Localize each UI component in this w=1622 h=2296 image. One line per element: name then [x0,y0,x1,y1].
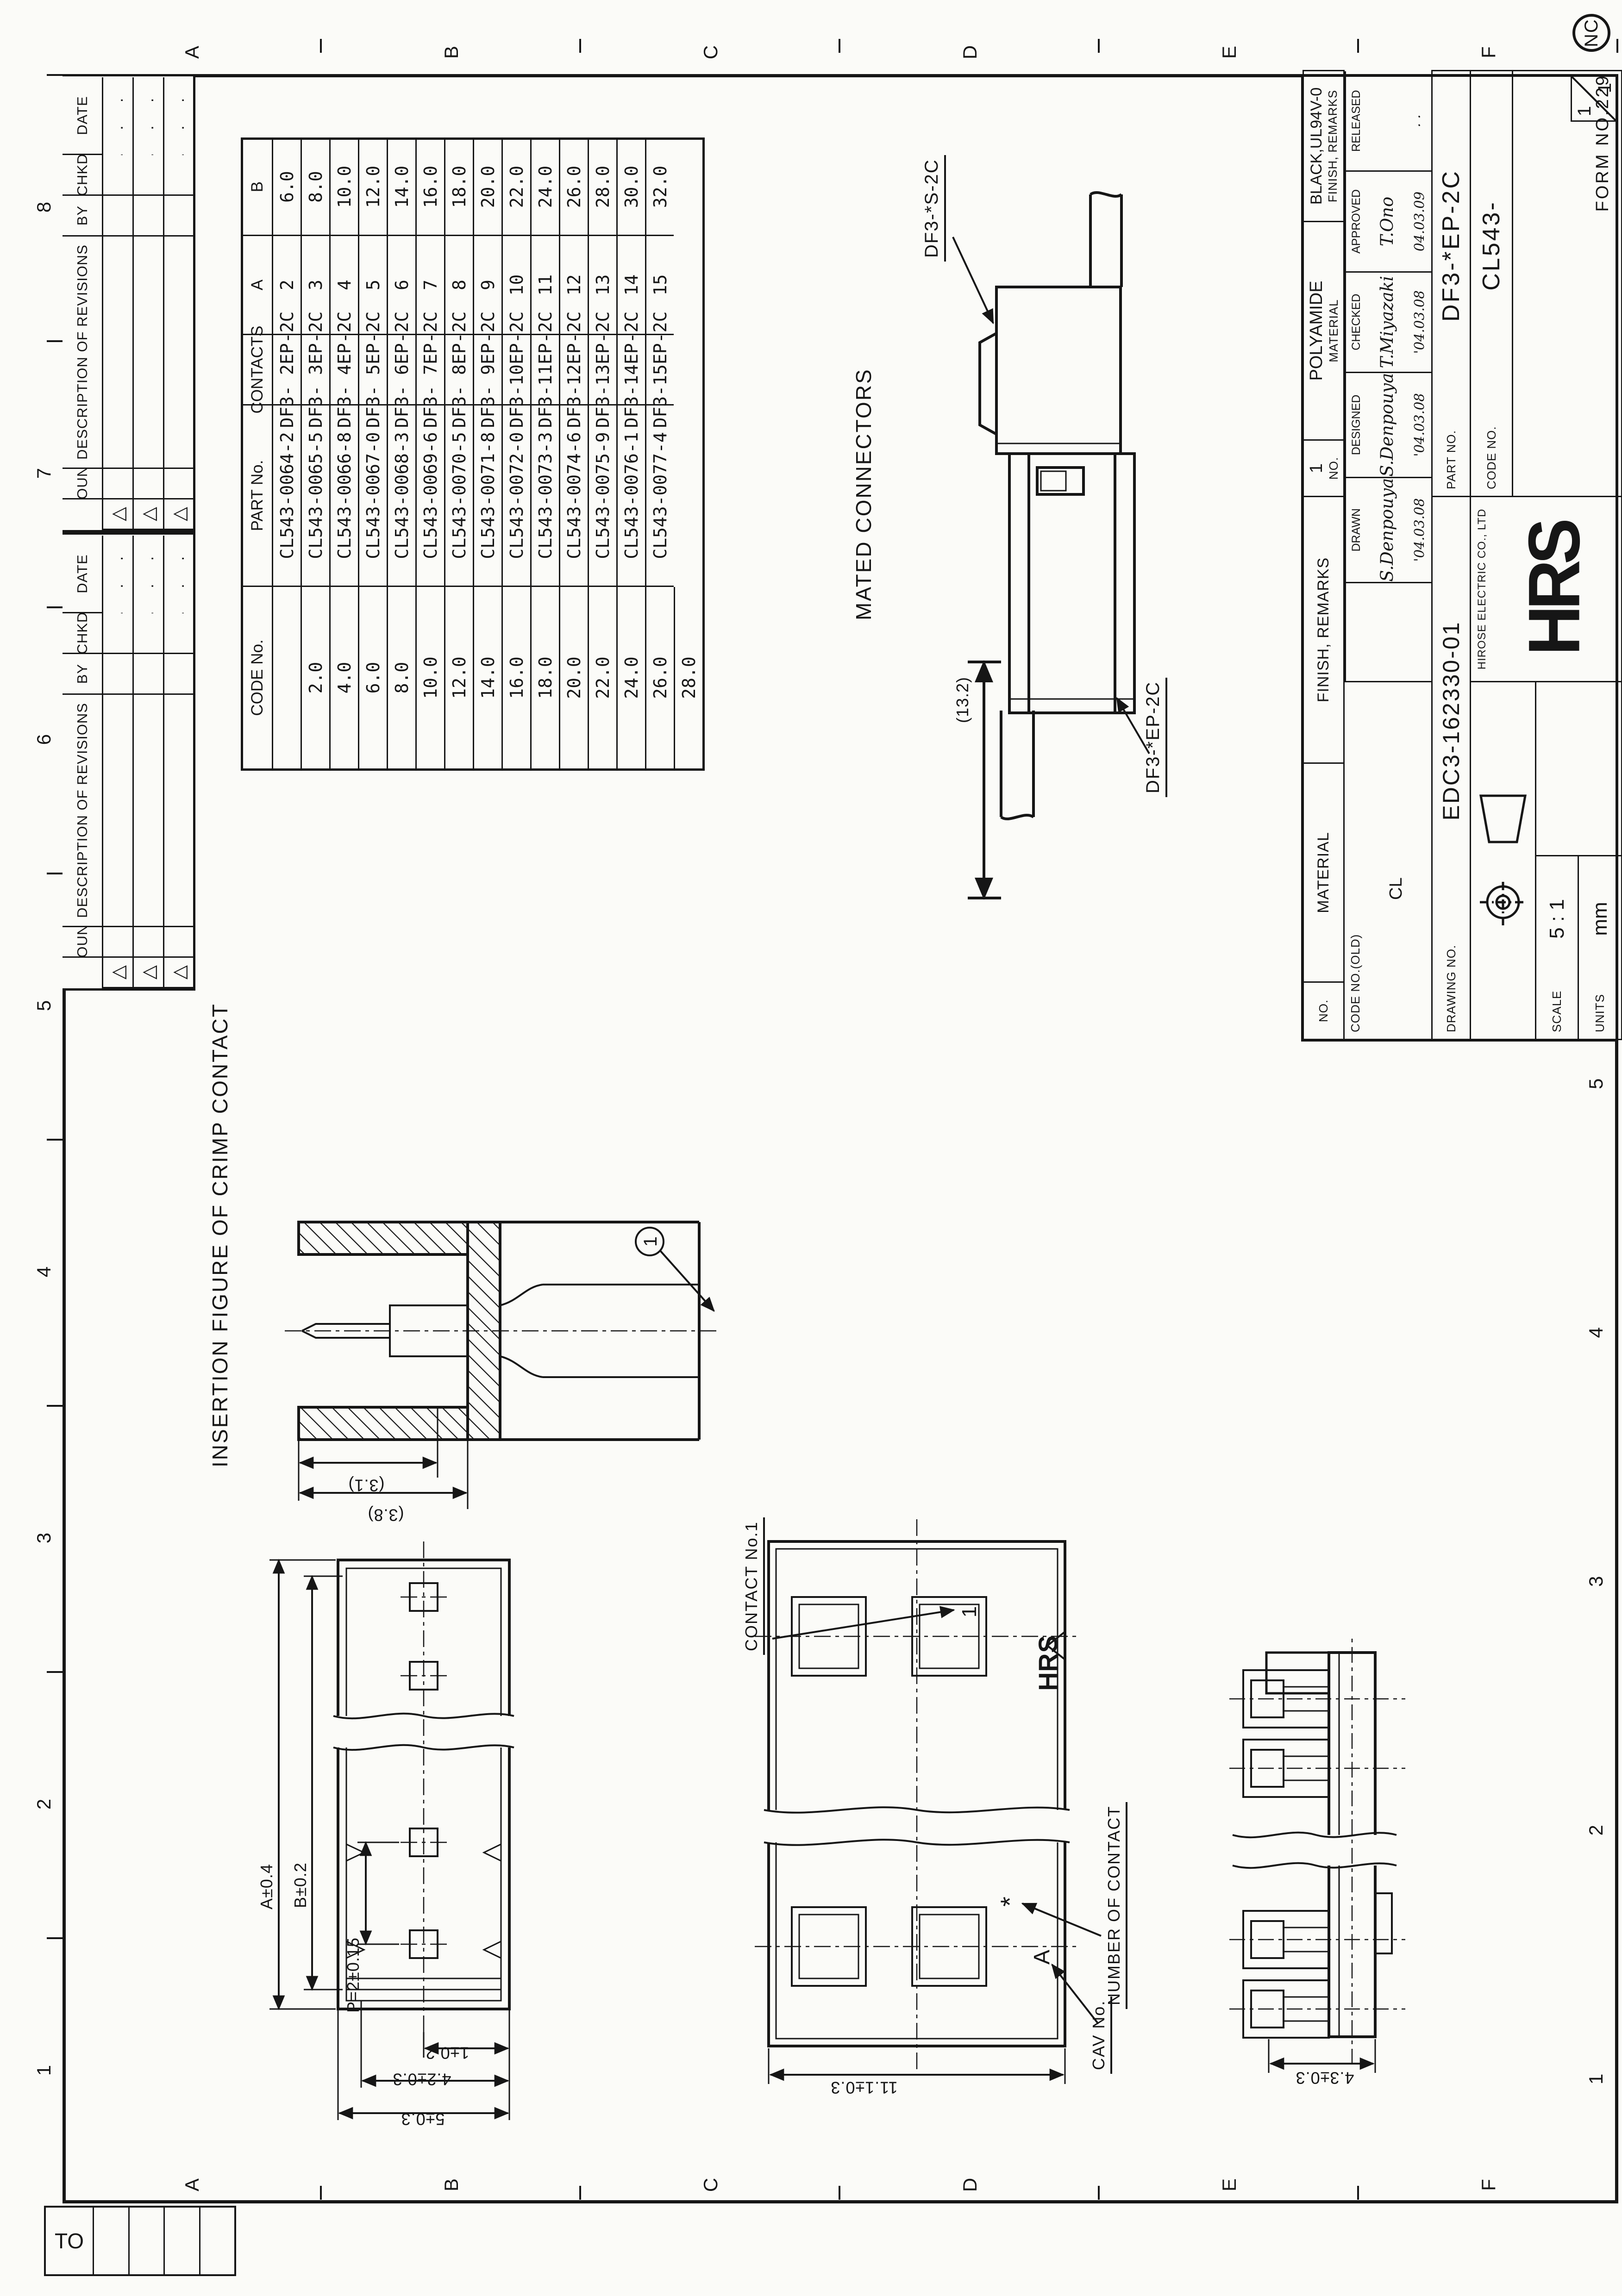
zone-letter: D [840,45,1100,59]
rev-date-header: DATE [63,536,102,613]
parts-cell-contacts: 12 [559,236,588,335]
parts-cell-a: 8.0 [301,139,329,236]
revision-mark-icon: △ [132,499,163,530]
parts-cell-part: DF3- 9EP-2C [473,335,501,406]
signature-empty-col [1346,583,1431,682]
revision-mark-icon: △ [163,499,194,530]
signature-role-label: DESIGNED [1346,373,1366,477]
cav-mark-a: A [1030,1950,1054,1965]
parts-cell-code: CL543-0072-0 [501,406,530,587]
scanned-drawing-page: 12345678 12345678 ABCDEF ABCDEF COUNT DE… [0,0,1622,2296]
parts-cell-a: 30.0 [616,139,645,236]
parts-cell-a: 18.0 [444,139,473,236]
signature-column: DRAWN S.Denpouya '04.03.08 [1346,478,1431,583]
material-no-cell: 1NO. [1303,439,1345,497]
parts-cell-b: 24.0 [616,587,645,768]
parts-cell-a: 12.0 [358,139,387,236]
zone-number: 2 [33,1671,55,1937]
signature-role-label: DRAWN [1346,478,1366,582]
rev-by-cell [132,196,163,237]
rev-count-cell [102,469,132,499]
finish-remarks-header: FINISH, REMARKS [1303,496,1345,764]
rev-desc-header: DESCRIPTION OF REVISIONS [63,695,102,927]
parts-cell-b: 8.0 [387,587,415,768]
signature-date: '04.03.08 [1407,273,1431,372]
zone-number: 2 [1585,1706,1607,1955]
parts-cell-contacts: 11 [530,236,559,335]
zone-number: 4 [33,1139,55,1405]
rev-desc-header: DESCRIPTION OF REVISIONS [63,237,102,469]
revision-table-1: COUNT DESCRIPTION OF REVISIONS BY CHKD D… [63,74,195,532]
revision-mark-icon: △ [102,499,132,530]
zone-letters-right: ABCDEF [63,36,1618,69]
mated-connectors-title: MATED CONNECTORS [851,368,876,620]
rev-desc-cell [102,695,132,927]
dim-end-1: 1±0.2 [426,2043,470,2063]
parts-cell-part: DF3-11EP-2C [530,335,559,406]
rev-chkd-cell [132,155,163,196]
parts-cell-part: DF3- 7EP-2C [415,335,444,406]
zone-numbers-top: 12345678 [25,74,63,2203]
parts-cell-b: 10.0 [415,587,444,768]
mated-height-dim: (13.2) [953,677,972,723]
parts-cell-b: 16.0 [501,587,530,768]
parts-cell-contacts: 14 [616,236,645,335]
rev-date-cell: ... [163,536,194,613]
insertion-figure: 1 [259,1092,778,1555]
hrs-logo: HRS [1512,523,1596,655]
code-no-old-cell: CODE NO.(OLD) CL [1343,681,1433,1040]
parts-cell-a: 22.0 [501,139,530,236]
signature-date: · · [1407,71,1431,170]
finish-value-cell: BLACK,UL94V-0FINISH, REMARKS [1303,70,1345,222]
side-view-figure [1222,1629,1463,2092]
cavity-asterisk: * [995,1897,1024,1907]
signature-date: '04.03.08 [1407,478,1431,582]
units-cell: UNITS mm [1578,855,1622,1040]
rev-by-cell [102,654,132,695]
part-no-cell: PART NO. DF3-*EP-2C [1431,70,1471,497]
rev-count-cell [163,927,194,958]
zone-letter: A [63,46,322,59]
to-distribution-block: TO [44,2206,236,2276]
parts-cell-a: 32.0 [645,139,674,236]
rev-by-cell [163,654,194,695]
parts-cell-code: CL543-0075-9 [588,406,616,587]
to-cell [165,2208,200,2274]
title-block: NO. MATERIAL FINISH, REMARKS 1NO. POLYAM… [1301,74,1618,1042]
signature-name [1366,71,1407,170]
number-of-contact-label: NUMBER OF CONTACT [1104,1802,1127,2009]
cav-no-label: CAV No. [1089,1997,1112,2074]
revision-mark-icon: △ [102,958,132,988]
parts-cell-b: 26.0 [645,587,674,768]
signature-role-label: APPROVED [1346,172,1366,271]
zone-number: 7 [33,340,55,606]
rev-date-header: DATE [63,77,102,155]
revision-table-2: COUNT DESCRIPTION OF REVISIONS BY CHKD D… [63,532,195,991]
zone-number: 6 [33,606,55,873]
signature-column: RELEASED · · [1346,71,1431,172]
rev-by-cell [102,196,132,237]
signature-role-label: RELEASED [1346,71,1366,170]
parts-cell-contacts: 5 [358,236,387,335]
zone-letter: E [1100,46,1359,59]
signature-column: APPROVED T.Ono 04.03.09 [1346,172,1431,272]
zone-letter: E [1100,2178,1359,2191]
parts-cell-part: DF3- 6EP-2C [387,335,415,406]
drawing-sheet: 12345678 12345678 ABCDEF ABCDEF COUNT DE… [0,0,1622,2296]
dim-end-42: 4.2±0.3 [393,2070,451,2089]
rev-count-cell [102,927,132,958]
scale-cell: SCALE 5 : 1 [1535,855,1579,1040]
rev-chkd-cell [163,155,194,196]
rev-count-cell [132,469,163,499]
projection-symbol-cell [1470,681,1536,1040]
parts-cell-contacts: 3 [301,236,329,335]
rev-chkd-header: CHKD [63,155,102,196]
molded-hrs-logo: HRS [1034,1635,1062,1691]
material-header: MATERIAL [1303,762,1345,983]
zone-number: 4 [1585,1208,1607,1457]
rev-sym-header [63,499,102,530]
code-no-cell: CODE NO. CL543- [1470,70,1513,497]
svg-text:1: 1 [1574,106,1595,116]
parts-cell-part: DF3- 5EP-2C [358,335,387,406]
parts-cell-contacts: 4 [329,236,358,335]
rev-sym-header [63,958,102,988]
parts-cell-contacts: 15 [645,236,674,335]
socket-part-label: DF3-*S-2C [921,155,946,262]
parts-cell-b: 20.0 [559,587,588,768]
parts-cell-contacts: 10 [501,236,530,335]
company-cell: HIROSE ELECTRIC CO., LTD HRS [1470,496,1622,682]
zone-letter: B [322,46,581,59]
rev-count-cell [132,927,163,958]
plug-part-label: DF3-*EP-2C [1143,678,1167,797]
revision-mark-icon: △ [163,958,194,988]
zone-letter: F [1359,46,1618,58]
signature-row: DRAWN S.Denpouya '04.03.08 DESIGNED S.De… [1345,71,1433,682]
zone-number: 1 [33,1937,55,2203]
parts-cell-part: DF3-13EP-2C [588,335,616,406]
parts-cell-code: CL543-0065-5 [301,406,329,587]
signature-column: DESIGNED S.Denpouya '04.03.08 [1346,373,1431,478]
parts-cell-a: 6.0 [272,139,301,236]
parts-header-part: PART No. [243,406,272,587]
rev-chkd-cell [132,613,163,654]
rev-count-header: COUNT [63,469,102,499]
rev-date-cell: ... [102,77,132,155]
parts-cell-a: 14.0 [387,139,415,236]
rev-by-header: BY [63,196,102,237]
rev-by-cell [163,196,194,237]
zone-number: 8 [33,74,55,340]
parts-cell-a: 10.0 [329,139,358,236]
zone-number: 3 [1585,1457,1607,1706]
nc-stamp: NC [1572,14,1610,52]
rev-chkd-cell [102,613,132,654]
parts-cell-code: CL543-0067-0 [358,406,387,587]
dim-b: B±0.2 [291,1862,310,1908]
parts-cell-a: 16.0 [415,139,444,236]
parts-cell-b: 18.0 [530,587,559,768]
rev-date-cell: ... [102,536,132,613]
parts-cell-part: DF3- 8EP-2C [444,335,473,406]
rev-date-cell: ... [132,77,163,155]
signature-role-label: CHECKED [1346,273,1366,372]
revision-mark-icon: △ [132,958,163,988]
parts-cell-contacts: 7 [415,236,444,335]
zone-letter: D [840,2178,1100,2192]
rev-chkd-header: CHKD [63,613,102,654]
parts-cell-contacts: 6 [387,236,415,335]
parts-cell-code: CL543-0068-3 [387,406,415,587]
parts-cell-contacts: 9 [473,236,501,335]
parts-cell-contacts: 13 [588,236,616,335]
rev-desc-cell [163,695,194,927]
parts-cell-b: 28.0 [674,587,702,768]
to-cell [94,2208,130,2274]
parts-cell-code: CL543-0073-3 [530,406,559,587]
zone-number: 1 [1585,1955,1607,2204]
insertion-dim-31: (3.1) [348,1475,384,1495]
to-label: TO [46,2208,94,2274]
rev-desc-cell [163,237,194,469]
zone-letter: A [63,2178,322,2191]
to-cell [200,2208,235,2274]
rev-chkd-cell [163,613,194,654]
signature-name: T.Ono [1366,172,1407,271]
rev-desc-cell [102,237,132,469]
parts-cell-contacts: 8 [444,236,473,335]
zone-number: 3 [33,1405,55,1671]
signature-name: T.Miyazaki [1366,273,1407,372]
signature-name: S.Denpouya [1366,373,1407,477]
scale-units-side-cell [1535,681,1622,856]
parts-table: CODE No. PART No. CONTACTS A B CL543-006… [241,137,705,771]
parts-cell-code: CL543-0071-8 [473,406,501,587]
parts-cell-b: 12.0 [444,587,473,768]
zone-letter: F [1359,2179,1618,2191]
parts-cell-b: 14.0 [473,587,501,768]
rev-by-header: BY [63,654,102,695]
cavity-1-number: 1 [958,1606,981,1617]
parts-cell-code: CL543-0074-6 [559,406,588,587]
parts-cell-b: 4.0 [329,587,358,768]
signature-date: '04.03.08 [1407,373,1431,477]
parts-header-a: A [243,236,272,335]
parts-cell-b: 6.0 [358,587,387,768]
material-value-cell: POLYAMIDEMATERIAL [1303,221,1345,441]
zone-letter: B [322,2178,581,2191]
parts-cell-contacts: 2 [272,236,301,335]
rev-date-cell: ... [163,77,194,155]
dim-p: P=2±0.15 [344,1937,363,2013]
rev-desc-cell [132,695,163,927]
material-no-header: NO. [1303,981,1345,1040]
parts-cell-a: 28.0 [588,139,616,236]
parts-cell-code: CL543-0069-6 [415,406,444,587]
signature-name: S.Denpouya [1366,478,1407,582]
rev-date-cell: ... [132,536,163,613]
parts-header-b: B [243,139,272,236]
parts-cell-a: 24.0 [530,139,559,236]
parts-cell-a: 26.0 [559,139,588,236]
parts-cell-part: DF3-12EP-2C [559,335,588,406]
rev-chkd-cell [102,155,132,196]
dim-end-5: 5±0.3 [401,2109,445,2129]
zone-letter: C [581,2178,840,2192]
rev-by-cell [132,654,163,695]
rev-count-cell [163,469,194,499]
third-angle-projection-icon [1475,777,1531,944]
parts-cell-part: DF3-15EP-2C [645,335,674,406]
parts-header-code: CODE No. [243,587,272,768]
to-cell [130,2208,165,2274]
rev-desc-cell [132,237,163,469]
balloon-1: 1 [640,1236,661,1247]
parts-cell-code: CL543-0070-5 [444,406,473,587]
parts-cell-part: DF3- 4EP-2C [329,335,358,406]
parts-cell-code: CL543-0064-2 [272,406,301,587]
parts-cell-part: DF3- 3EP-2C [301,335,329,406]
insertion-dim-38: (3.8) [367,1505,404,1524]
parts-cell-b: 22.0 [588,587,616,768]
housing-top-view [250,1532,537,2157]
rev-count-header: COUNT [63,927,102,958]
parts-header-contacts: CONTACTS [243,335,272,406]
parts-cell-part: DF3-10EP-2C [501,335,530,406]
parts-cell-a: 20.0 [473,139,501,236]
parts-cell-part: DF3- 2EP-2C [272,335,301,406]
parts-cell-b: 2.0 [301,587,329,768]
zone-number: 5 [33,873,55,1139]
form-number: FORM NO.229 [1593,74,1613,259]
zone-letter: C [581,45,840,59]
dim-4-3: 4.3±0.3 [1296,2068,1354,2088]
parts-cell-code: CL543-0077-4 [645,406,674,587]
parts-cell-code: CL543-0076-1 [616,406,645,587]
parts-cell-part: DF3-14EP-2C [616,335,645,406]
parts-cell-code: CL543-0066-8 [329,406,358,587]
drawing-no-cell: DRAWING NO. EDC3-162330-01 [1431,496,1471,1040]
zone-letters-left: ABCDEF [63,2170,1618,2200]
signature-column: CHECKED T.Miyazaki '04.03.08 [1346,273,1431,373]
dim-11-1: 11.1±0.3 [830,2078,897,2097]
contact-no1-label: CONTACT No.1 [742,1517,765,1655]
dim-a: A±0.4 [257,1864,276,1909]
insertion-figure-title: INSERTION FIGURE OF CRIMP CONTACT [207,1003,232,1467]
signature-date: 04.03.09 [1407,172,1431,271]
